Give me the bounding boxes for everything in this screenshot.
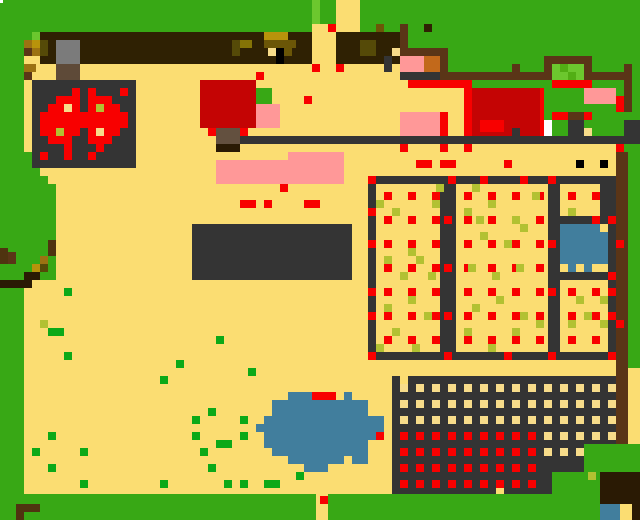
game-map[interactable] bbox=[0, 0, 640, 520]
corner-pixel bbox=[0, 0, 640, 520]
corner-pixel-part bbox=[0, 0, 3, 3]
